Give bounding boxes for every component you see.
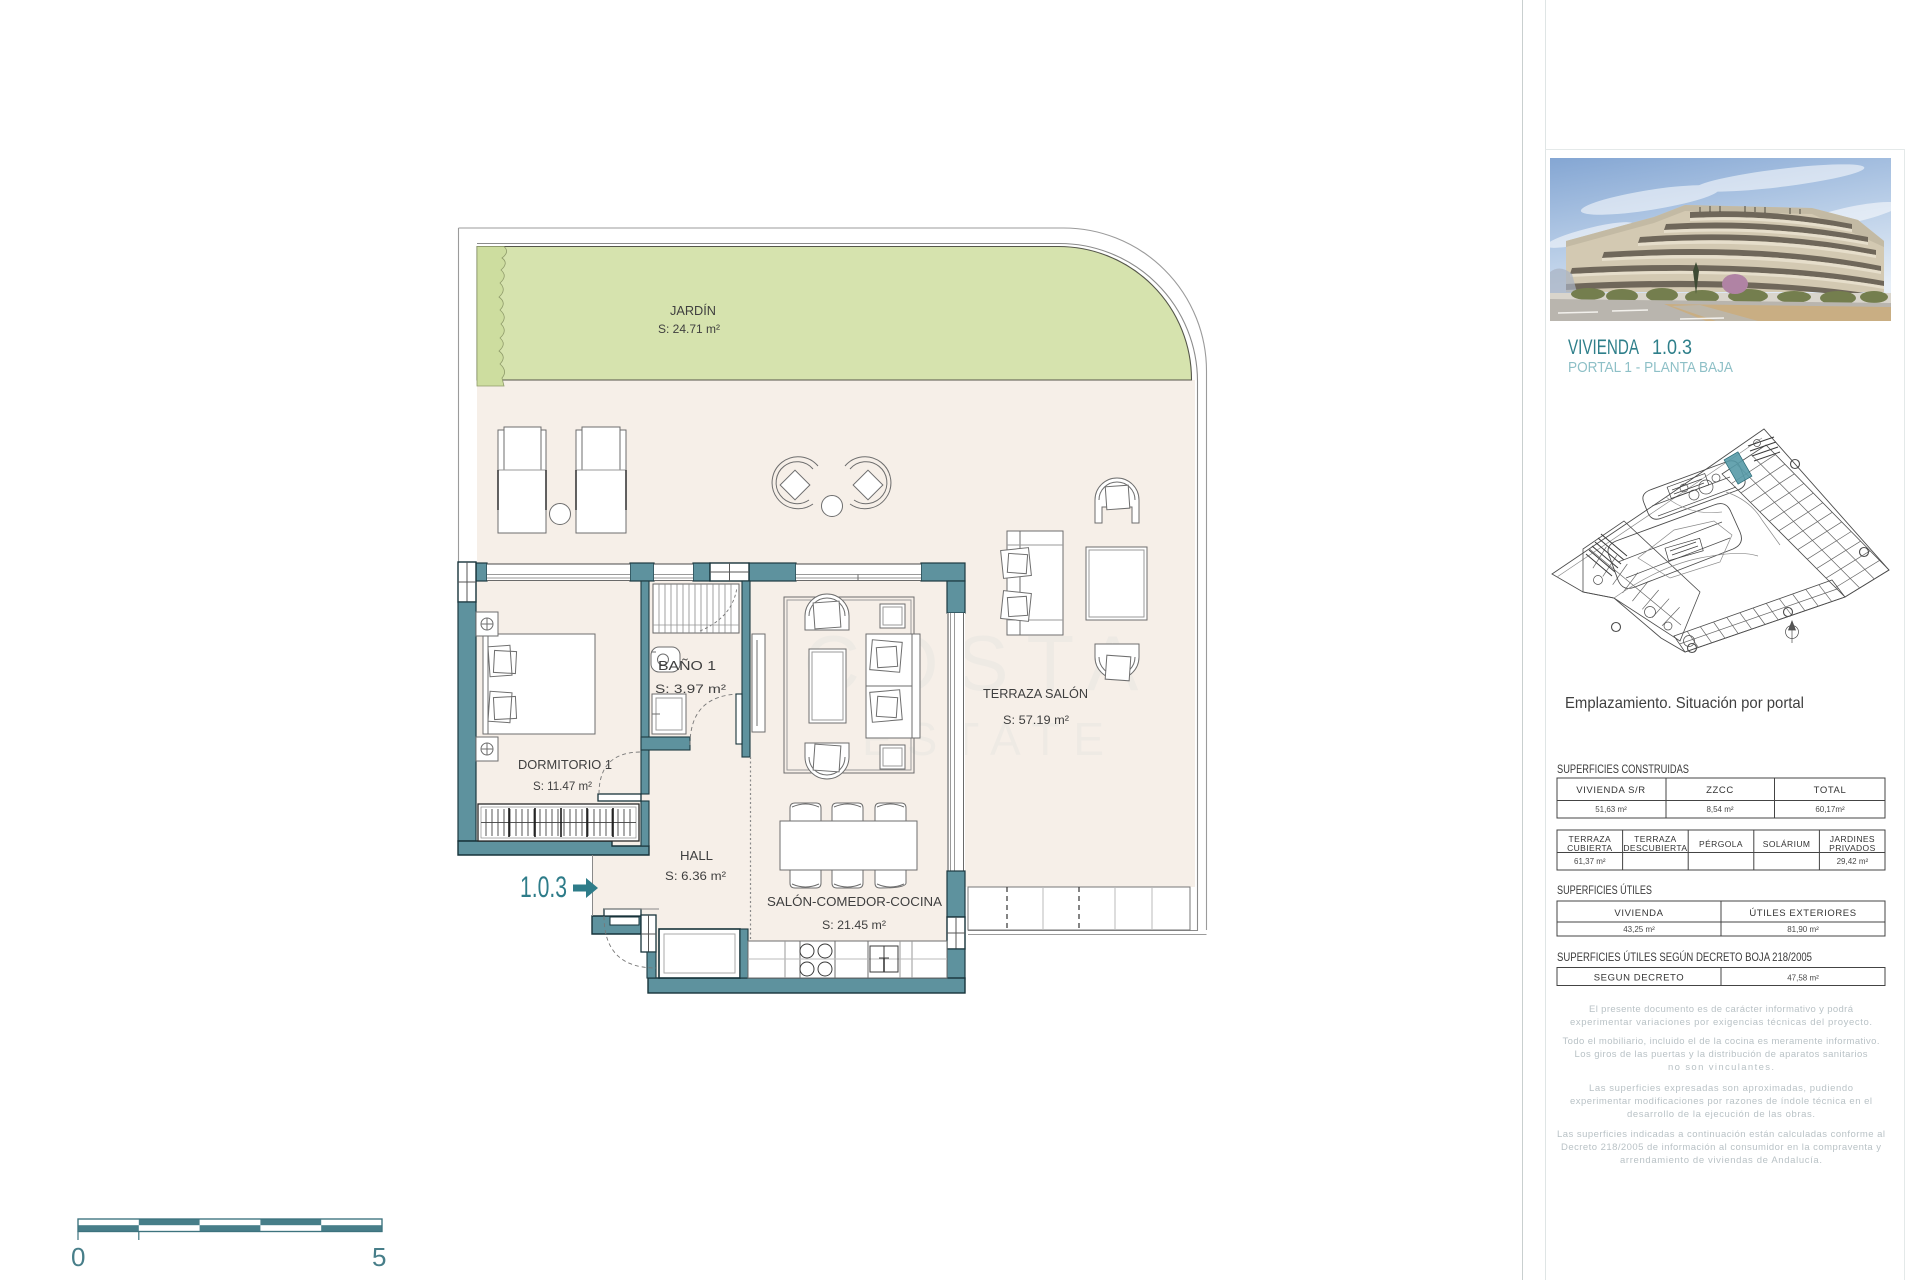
svg-text:8,54 m²: 8,54 m² xyxy=(1706,805,1733,814)
svg-text:PRIVADOS: PRIVADOS xyxy=(1829,843,1876,853)
svg-text:TERRAZA SALÓN: TERRAZA SALÓN xyxy=(983,686,1088,701)
svg-text:Los giros de las puertas y la: Los giros de las puertas y la distribuci… xyxy=(1575,1049,1868,1060)
svg-text:VIVIENDA S/R: VIVIENDA S/R xyxy=(1576,785,1646,796)
svg-text:29,42 m²: 29,42 m² xyxy=(1837,857,1869,866)
svg-text:Todo el mobiliario, incluido e: Todo el mobiliario, incluido el de la co… xyxy=(1563,1036,1880,1047)
svg-text:DORMITORIO 1: DORMITORIO 1 xyxy=(518,757,612,772)
svg-text:SALÓN-COMEDOR-COCINA: SALÓN-COMEDOR-COCINA xyxy=(767,894,942,909)
svg-text:43,25 m²: 43,25 m² xyxy=(1623,925,1655,934)
svg-text:S: 3.97 m²: S: 3.97 m² xyxy=(655,682,726,696)
svg-text:1.0.3: 1.0.3 xyxy=(1652,336,1692,359)
svg-text:SOLÁRIUM: SOLÁRIUM xyxy=(1763,839,1811,849)
svg-text:51,63 m²: 51,63 m² xyxy=(1595,805,1627,814)
svg-text:47,58 m²: 47,58 m² xyxy=(1787,974,1819,983)
svg-text:ÚTILES EXTERIORES: ÚTILES EXTERIORES xyxy=(1749,908,1856,919)
svg-text:1.0.3: 1.0.3 xyxy=(520,871,567,904)
svg-text:SUPERFICIES ÚTILES SEGÚN DECRE: SUPERFICIES ÚTILES SEGÚN DECRETO BOJA 21… xyxy=(1557,951,1812,964)
svg-text:0: 0 xyxy=(71,1242,85,1272)
svg-text:HALL: HALL xyxy=(680,848,713,863)
svg-text:BAÑO 1: BAÑO 1 xyxy=(658,658,716,673)
svg-text:S: 6.36 m²: S: 6.36 m² xyxy=(665,869,726,883)
svg-text:SUPERFICIES CONSTRUIDAS: SUPERFICIES CONSTRUIDAS xyxy=(1557,764,1689,776)
svg-text:S: 21.45 m²: S: 21.45 m² xyxy=(822,918,886,932)
svg-text:SUPERFICIES ÚTILES: SUPERFICIES ÚTILES xyxy=(1557,884,1652,897)
svg-text:no son vinculantes.: no son vinculantes. xyxy=(1668,1062,1774,1073)
svg-text:PÉRGOLA: PÉRGOLA xyxy=(1699,839,1743,849)
svg-text:desarrollo de la ejecución de: desarrollo de la ejecución de las obras. xyxy=(1627,1109,1815,1120)
svg-text:experimentar modificaciones po: experimentar modificaciones por razones … xyxy=(1570,1096,1872,1107)
svg-text:60,17m²: 60,17m² xyxy=(1815,805,1845,814)
svg-text:experimentar variaciones por e: experimentar variaciones por exigencias … xyxy=(1570,1017,1872,1028)
svg-text:ZZCC: ZZCC xyxy=(1706,785,1734,796)
svg-text:81,90 m²: 81,90 m² xyxy=(1787,925,1819,934)
svg-text:VIVIENDA: VIVIENDA xyxy=(1614,908,1663,919)
svg-text:Decreto 218/2005 de informació: Decreto 218/2005 de información al consu… xyxy=(1561,1142,1881,1153)
svg-text:VIVIENDA: VIVIENDA xyxy=(1568,336,1639,359)
svg-text:Las superficies indicadas a co: Las superficies indicadas a continuación… xyxy=(1557,1129,1885,1140)
svg-text:CUBIERTA: CUBIERTA xyxy=(1567,843,1612,853)
svg-text:El presente documento es de ca: El presente documento es de carácter inf… xyxy=(1589,1004,1854,1015)
svg-text:TOTAL: TOTAL xyxy=(1814,785,1847,796)
svg-text:61,37 m²: 61,37 m² xyxy=(1574,857,1606,866)
svg-text:S: 11.47 m²: S: 11.47 m² xyxy=(533,779,592,793)
svg-text:5: 5 xyxy=(372,1242,386,1272)
svg-text:PORTAL 1 - PLANTA BAJA: PORTAL 1 - PLANTA BAJA xyxy=(1568,359,1733,376)
svg-text:DESCUBIERTA: DESCUBIERTA xyxy=(1623,843,1687,853)
svg-text:arrendamiento de viviendas de: arrendamiento de viviendas de Andalucía. xyxy=(1620,1155,1822,1166)
svg-text:JARDÍN: JARDÍN xyxy=(670,303,716,318)
svg-text:Emplazamiento. Situación por p: Emplazamiento. Situación por portal xyxy=(1565,695,1804,712)
svg-text:Las superficies expresadas son: Las superficies expresadas son aproximad… xyxy=(1589,1083,1853,1094)
svg-text:S: 24.71 m²: S: 24.71 m² xyxy=(658,322,720,336)
svg-text:SEGUN DECRETO: SEGUN DECRETO xyxy=(1594,973,1685,984)
svg-text:S: 57.19 m²: S: 57.19 m² xyxy=(1003,713,1069,727)
